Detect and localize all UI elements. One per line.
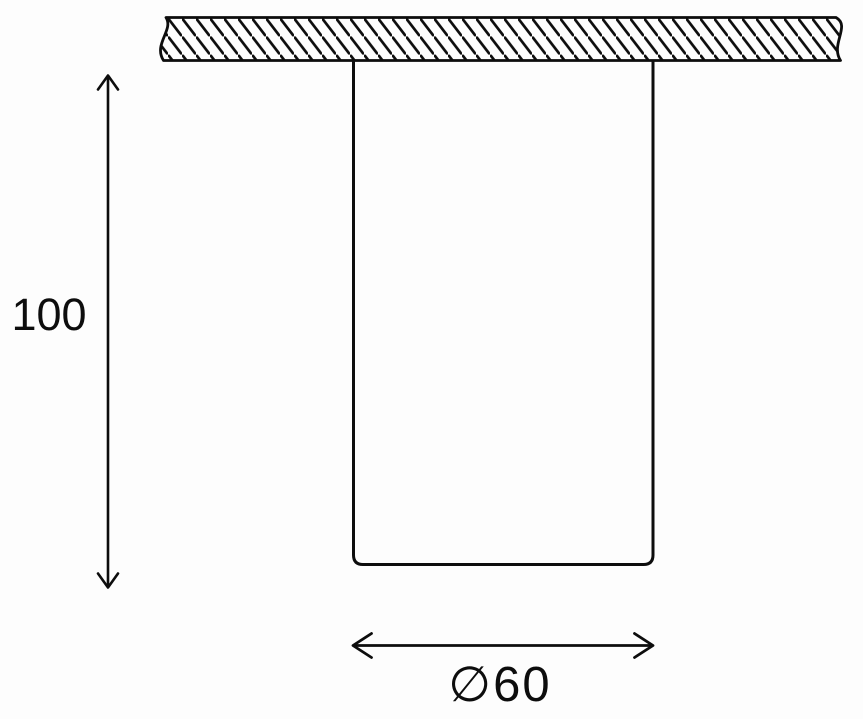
dimension-drawing: 100 ∅60 [0, 0, 863, 719]
height-dimension [98, 76, 118, 588]
ceiling-surface-section [160, 18, 841, 61]
drawing-canvas: 100 ∅60 [0, 0, 863, 719]
fixture-body [354, 61, 654, 565]
diameter-dimension-label: ∅60 [448, 658, 551, 712]
diameter-dimension [353, 634, 653, 658]
height-dimension-label: 100 [11, 289, 86, 340]
